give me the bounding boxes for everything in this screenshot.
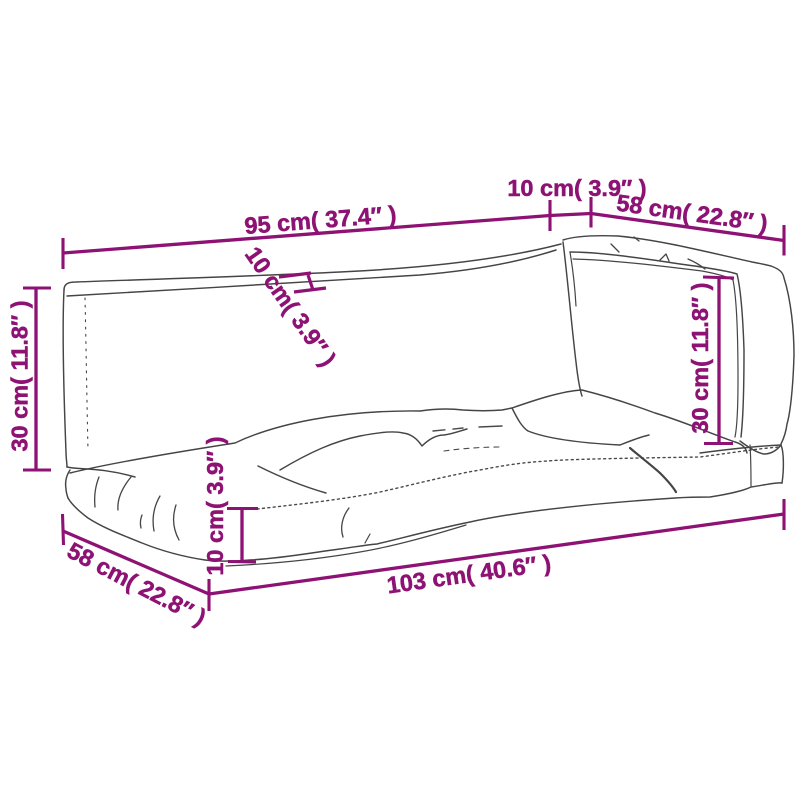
svg-text:30 cm( 11.8″ ): 30 cm( 11.8″ ) (687, 282, 713, 433)
svg-text:30 cm( 11.8″ ): 30 cm( 11.8″ ) (7, 300, 33, 451)
svg-text:10 cm( 3.9″ ): 10 cm( 3.9″ ) (202, 436, 228, 575)
